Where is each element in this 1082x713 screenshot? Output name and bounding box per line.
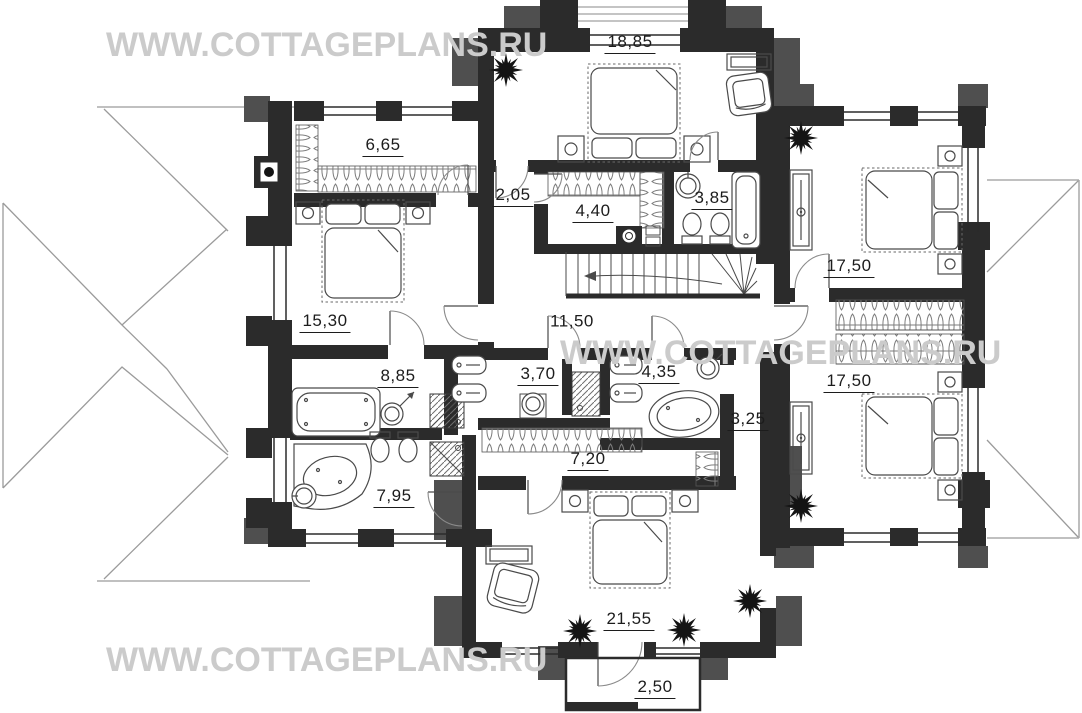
floor-plan-drawing	[0, 0, 1082, 713]
stairs	[566, 252, 760, 296]
terrace-railing	[578, 7, 688, 21]
balcony	[566, 658, 700, 710]
bed-top-room	[558, 64, 710, 162]
bed-right-top-room	[862, 146, 962, 274]
jacuzzi-rect	[292, 388, 380, 436]
washing-machine	[616, 226, 660, 246]
wall-cabinets	[790, 170, 812, 474]
bed-right-bottom-room	[862, 372, 962, 500]
bed-bottom-room	[562, 490, 698, 588]
chimney-flue	[260, 162, 278, 182]
floor-plan-page: WWW.COTTAGEPLANS.RU WWW.COTTAGEPLANS.RU …	[0, 0, 1082, 713]
bathtub-straight	[732, 172, 760, 248]
bed-left-room	[296, 200, 430, 302]
jacuzzi-oval	[646, 386, 722, 441]
